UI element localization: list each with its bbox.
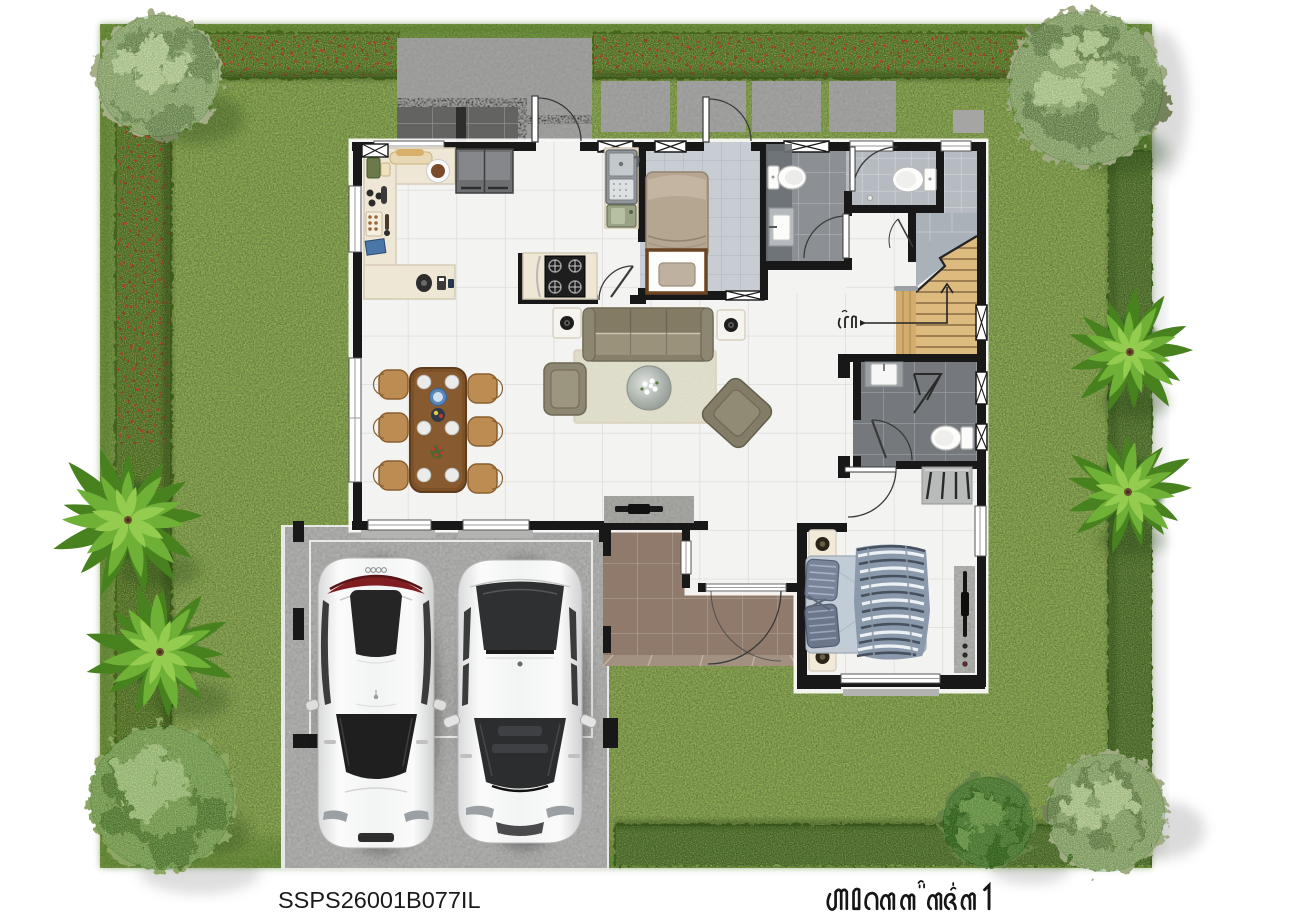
svg-text:SSPS26001B077IL: SSPS26001B077IL bbox=[278, 887, 481, 913]
